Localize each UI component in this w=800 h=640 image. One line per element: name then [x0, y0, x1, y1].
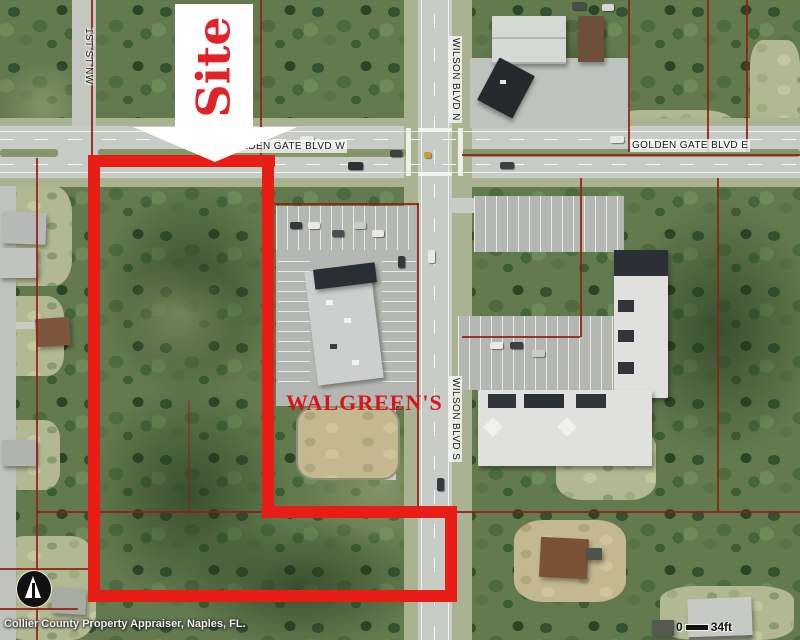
parcel-line [707, 0, 709, 152]
site-label: Site [175, 8, 253, 126]
site-boundary-top [88, 155, 275, 167]
car [510, 342, 523, 349]
parcel-line [0, 608, 78, 610]
plaza-dark-roof [488, 394, 516, 408]
scale-distance: 34ft [711, 620, 732, 634]
car [602, 4, 614, 11]
road-median [0, 149, 58, 157]
car [610, 136, 624, 143]
plaza-dark-roof [618, 362, 634, 374]
commercial-building [492, 16, 566, 64]
parcel-line [628, 0, 630, 152]
rooftop-unit [352, 360, 359, 365]
house [0, 248, 38, 278]
car [428, 250, 435, 263]
rooftop-unit [344, 318, 351, 323]
scale-zero: 0 [676, 620, 683, 634]
parcel-line [457, 511, 800, 513]
canopy-mark [500, 80, 506, 84]
car [437, 478, 444, 491]
label-wilson-blvd-n: WILSON BLVD N [449, 36, 462, 123]
plaza-dark-roof [524, 394, 564, 408]
car [354, 222, 366, 229]
plaza-dark-roof [618, 330, 634, 342]
road-edge-line [0, 131, 800, 132]
walgreens-label: WALGREEN'S [286, 390, 443, 416]
parcel-line [462, 336, 580, 338]
plaza-dark-roof [576, 394, 606, 408]
car [390, 150, 402, 157]
plaza-parking-lot [474, 196, 624, 252]
parcel-line [36, 511, 262, 513]
car [308, 222, 320, 229]
site-boundary-inner [262, 155, 274, 518]
scale-bar: 0 34ft [676, 620, 732, 634]
tree-grove [120, 260, 240, 370]
north-arrow-icon [16, 570, 52, 608]
car [290, 222, 302, 229]
car [372, 230, 384, 237]
label-wilson-blvd-s: WILSON BLVD S [449, 376, 462, 462]
label-golden-gate-blvd-e: GOLDEN GATE BLVD E [630, 139, 750, 152]
plaza-dark-roof [618, 300, 634, 312]
car [572, 2, 586, 10]
house [539, 537, 589, 579]
shed [652, 620, 674, 636]
attribution-text: Collier County Property Appraiser, Naple… [4, 618, 246, 630]
site-boundary-right [445, 506, 457, 602]
car [398, 256, 405, 268]
road-edge-line [0, 172, 800, 173]
house [51, 587, 86, 615]
scale-bar-segment [686, 625, 708, 630]
car [332, 230, 344, 237]
site-boundary-bottom [88, 590, 457, 602]
retention-area [296, 406, 400, 480]
crosswalk [458, 128, 463, 176]
label-1st-st-nw: 1ST ST NW [82, 26, 95, 87]
parcel-line [717, 178, 719, 512]
brown-roof-building [578, 16, 604, 62]
roof-ridge [492, 37, 566, 39]
car [532, 350, 545, 357]
parcel-line [746, 0, 748, 152]
aerial-map: GOLDEN GATE BLVD W GOLDEN GATE BLVD E WI… [0, 0, 800, 640]
house [2, 440, 36, 466]
rooftop-unit [330, 344, 337, 349]
road-edge-line [421, 0, 422, 640]
lane-line [434, 0, 435, 640]
parcel-line [462, 154, 800, 156]
car [348, 162, 363, 170]
road-shoulder [0, 178, 800, 187]
crosswalk [406, 128, 411, 176]
parcel-line [0, 568, 90, 570]
rooftop-unit [326, 300, 333, 305]
house [1, 211, 46, 245]
plaza-dark-roof [614, 250, 668, 276]
parcel-line [417, 203, 419, 508]
shed [586, 548, 602, 560]
parcel-line [188, 400, 190, 511]
site-boundary-jog [262, 506, 457, 518]
car [500, 162, 514, 169]
parking-stalls [382, 252, 416, 382]
site-boundary-left [88, 155, 100, 602]
traffic-signal [424, 152, 431, 158]
house [35, 317, 71, 347]
crosswalk [418, 172, 452, 176]
car [490, 342, 503, 349]
crosswalk [418, 128, 452, 132]
parcel-line [580, 178, 582, 337]
parcel-line [274, 203, 419, 205]
